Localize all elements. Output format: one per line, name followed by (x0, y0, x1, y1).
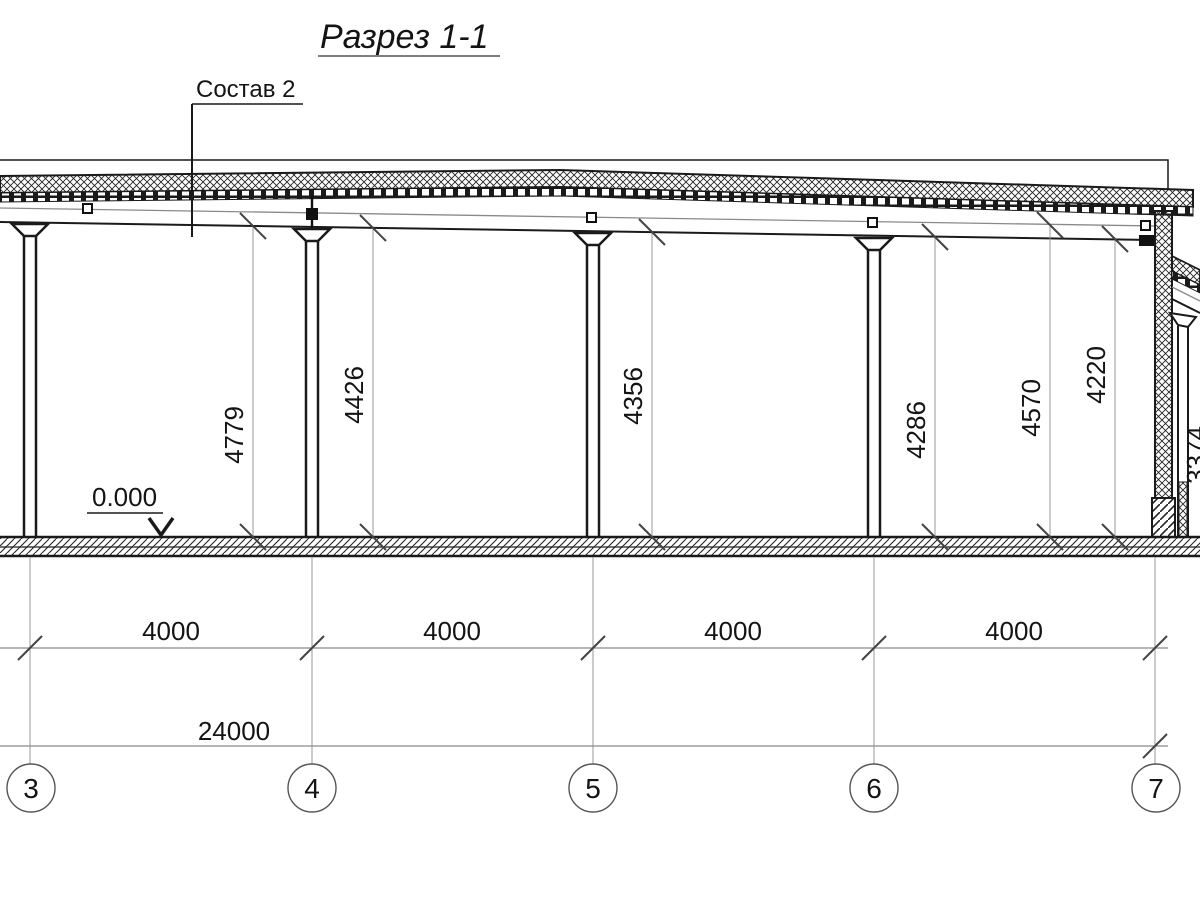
svg-text:3: 3 (23, 773, 39, 804)
bay-dim-1: 4000 (142, 616, 200, 646)
girder-joint-grid4 (306, 196, 318, 230)
svg-text:5: 5 (585, 773, 601, 804)
title-text: Разрез 1-1 (320, 18, 488, 56)
bay-dimension-row: 4000 4000 4000 4000 (0, 616, 1168, 660)
grid-bubble-5: 5 (569, 764, 617, 812)
height-dim-1: 4779 (219, 406, 249, 464)
svg-text:6: 6 (866, 773, 882, 804)
grid-bubble-6: 6 (850, 764, 898, 812)
wall-pier (1152, 498, 1175, 537)
level-arrow-icon (149, 518, 173, 535)
height-dim-5: 4570 (1016, 379, 1046, 437)
grid-bubble-3: 3 (7, 764, 55, 812)
column-grid5 (575, 233, 611, 537)
grid-bubbles: 3 4 5 6 7 (7, 764, 1180, 812)
height-dim-2: 4426 (339, 366, 369, 424)
column-grid4 (294, 229, 330, 537)
total-dimension-row: 24000 (0, 716, 1168, 758)
column-grid6 (856, 238, 892, 537)
callout-label: Состав 2 (196, 76, 296, 103)
column-grid3 (12, 224, 48, 537)
bay-dim-2: 4000 (423, 616, 481, 646)
height-dim-6: 4220 (1081, 346, 1111, 404)
bay-dim-4: 4000 (985, 616, 1043, 646)
bay-dim-3: 4000 (704, 616, 762, 646)
floor-slab (0, 537, 1200, 556)
height-dim-3: 4356 (618, 367, 648, 425)
svg-text:7: 7 (1148, 773, 1164, 804)
girder-bearing-notch (1139, 235, 1155, 246)
drawing-svg: Разрез 1-1 (0, 0, 1200, 900)
vertical-dimensions: 4779 4426 4356 4286 4570 4220 3374 (219, 212, 1200, 550)
level-mark: 0.000 (87, 482, 173, 535)
section-drawing-canvas: Разрез 1-1 (0, 0, 1200, 900)
girder-bottom-line (0, 222, 1155, 240)
girder-top-line (0, 208, 1155, 226)
total-dim: 24000 (198, 716, 270, 746)
grid-bubble-4: 4 (288, 764, 336, 812)
svg-text:4: 4 (304, 773, 320, 804)
height-dim-4: 4286 (901, 401, 931, 459)
height-dim-7-clipped: 3374 (1181, 426, 1200, 484)
drawing-title: Разрез 1-1 (318, 18, 500, 56)
level-mark-value: 0.000 (92, 482, 157, 512)
grid-bubble-7: 7 (1132, 764, 1180, 812)
annex-roof (1172, 256, 1200, 313)
